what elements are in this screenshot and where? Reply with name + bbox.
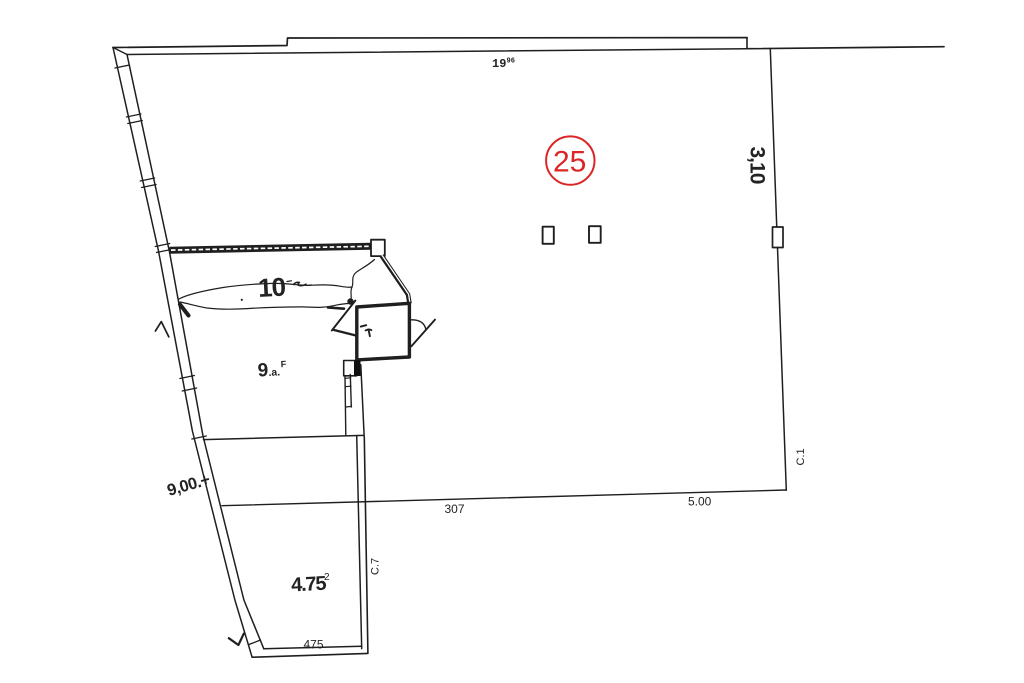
svg-text:C.7: C.7 [370, 558, 382, 575]
svg-text:25: 25 [553, 146, 586, 179]
svg-text:96: 96 [507, 58, 515, 66]
svg-text:9.a.F: 9.a.F [257, 359, 287, 382]
svg-text:2: 2 [324, 572, 330, 583]
svg-text:10: 10 [257, 272, 286, 303]
svg-text:9,00.+: 9,00.+ [165, 471, 212, 500]
svg-text:5.00: 5.00 [688, 495, 712, 509]
svg-text:19: 19 [492, 57, 506, 71]
svg-text:C.1: C.1 [795, 448, 807, 465]
svg-text:307: 307 [445, 502, 465, 516]
svg-text:475: 475 [304, 638, 324, 652]
svg-text:4.75: 4.75 [291, 573, 327, 597]
svg-text:3,10: 3,10 [746, 147, 769, 184]
